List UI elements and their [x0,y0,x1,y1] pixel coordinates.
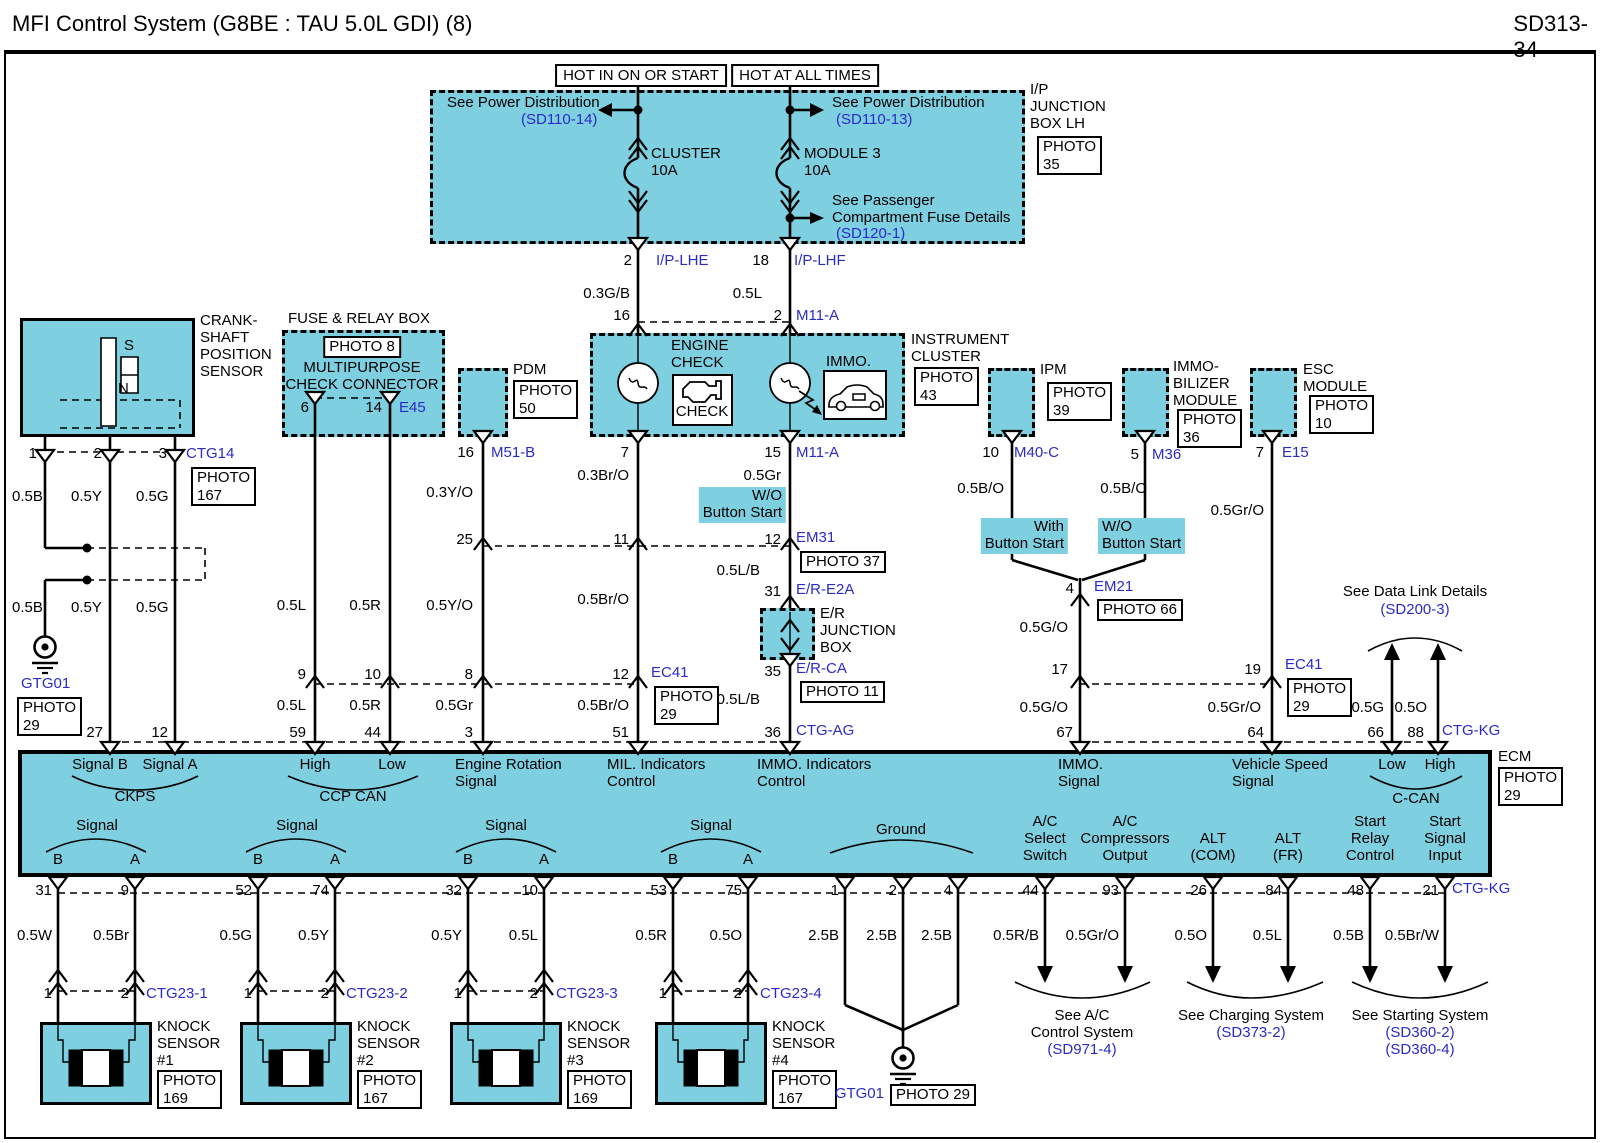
diagram-label: 0.5Y/O [426,598,473,615]
diagram-label: 4 [1066,581,1074,598]
diagram-label: 2.5B [866,928,897,945]
brace [1352,982,1488,998]
diagram-label: 3 [159,446,167,463]
knock-piezo-icon [269,1050,282,1086]
junction-dot [83,576,92,585]
diagram-label: 0.5B/O [1100,481,1147,498]
diagram-label: 0.5L [509,928,538,945]
check-engine-glyph-icon [683,381,721,402]
diagram-label: 2 [889,883,897,900]
diagram-label: 35 [764,664,781,681]
connector-name: M11-A [796,308,839,325]
connector-name: CTG23-1 [146,986,208,1003]
diagram-label: 88 [1407,725,1424,742]
diagram-label: Vehicle Speed Signal [1232,757,1328,791]
diagram-label: 0.5L [1253,928,1282,945]
connector-chevron-icon [306,742,324,754]
connector-chevron-icon [781,238,799,250]
diagram-label: 0.5G/O [1020,700,1068,717]
knock-piezo-icon [684,1050,697,1086]
diagram-label: KNOCK SENSOR #1 [157,1019,220,1070]
diagram-label: Signal A [142,757,197,774]
sd-reference-link[interactable]: (SD110-14) [521,112,597,129]
photo-ref[interactable]: PHOTO 50 [513,380,578,419]
connector-name: I/P-LHF [794,253,846,270]
diagram-label: 0.5Gr [435,698,473,715]
connector-chevron-icon [1429,742,1447,754]
sd-reference-link[interactable]: (SD200-3) [1380,602,1449,619]
ground-symbol-gtg01-bottom-dot [899,1054,906,1061]
diagram-label: 2 [530,986,538,1003]
diagram-label: 6 [301,400,309,417]
diagram-label: Signal [485,818,527,835]
diagram-label: 2.5B [808,928,839,945]
connector-chevron-icon [1071,742,1089,754]
diagram-label: 0.5Br/O [577,592,629,609]
photo-ref[interactable]: PHOTO 167 [191,467,256,506]
diagram-label: 0.5G [219,928,252,945]
diagram-label: See Starting System [1352,1008,1489,1025]
diagram-label: 15 [764,445,781,462]
diagram-label: 0.5Br [93,928,129,945]
photo-ref[interactable]: PHOTO 169 [157,1070,222,1109]
knock-piezo-icon [69,1050,82,1086]
diagram-label: ALT (FR) [1273,831,1303,865]
diagram-label: 0.3Br/O [577,468,629,485]
diagram-label: 9 [121,883,129,900]
diagram-label: MULTIPURPOSE CHECK CONNECTOR [285,360,438,394]
diagram-label: CHECK [676,404,729,421]
connector-chevron-icon [36,450,54,462]
photo-ref[interactable]: PHOTO 66 [1097,599,1183,621]
diagram-label: Engine Rotation Signal [455,757,562,791]
arrow-left-icon [598,103,612,117]
connector-name: GTG01 [21,676,70,693]
ground-symbol-gtg01-left-dot [41,643,48,650]
photo-ref[interactable]: PHOTO 29 [17,697,82,736]
junction-dot [634,106,643,115]
photo-ref[interactable]: PHOTO 167 [772,1070,837,1109]
diagram-label: MIL. Indicators Control [607,757,705,791]
knock-sensor-lead [258,1024,269,1062]
photo-ref[interactable]: PHOTO 35 [1037,136,1102,175]
diagram-label: 2 [734,986,742,1003]
diagram-label: 0.5W [17,928,52,945]
diagram-label: KNOCK SENSOR #4 [772,1019,835,1070]
diagram-label: 93 [1102,883,1119,900]
diagram-label: 0.5Br/O [577,698,629,715]
connector-chevron-icon [1263,431,1281,443]
diagram-label: Signal [276,818,318,835]
diagram-label: 10 [521,883,538,900]
connector-chevron-icon [474,431,492,443]
diagram-label: A/C Compressors Output [1080,814,1169,865]
diagram-label: 0.5Gr/O [1211,503,1264,520]
diagram-label: 18 [752,253,769,270]
diagram-label: 75 [725,883,742,900]
diagram-label: 0.5Gr/O [1208,700,1261,717]
diagram-label: ECM [1498,749,1531,766]
photo-ref[interactable]: PHOTO 29 [654,686,719,725]
diagram-label: 10 [982,445,999,462]
diagram-label: 0.5G/O [1020,620,1068,637]
diagram-label: With Button Start [981,518,1068,554]
connector-chevron-icon [629,742,647,754]
diagram-label: 0.5O [1174,928,1207,945]
knock-piezo-icon [520,1050,533,1086]
diagram-label: 2 [774,308,782,325]
connector-name: CTG23-4 [760,986,822,1003]
photo-ref[interactable]: PHOTO 43 [914,367,979,406]
diagram-label: 27 [86,725,103,742]
sd-reference-link[interactable]: (SD971-4) [1047,1042,1116,1059]
knock-piezo-icon [492,1050,520,1086]
diagram-label: CRANK- SHAFT POSITION SENSOR [200,313,272,381]
connector-name: E15 [1282,445,1309,462]
diagram-label: 0.3Y/O [426,485,473,502]
diagram-label: ALT (COM) [1191,831,1236,865]
knock-piezo-icon [282,1050,310,1086]
connector-name: E/R-CA [796,661,847,678]
diagram-label: 0.5Gr/O [1066,928,1119,945]
diagram-label: W/O Button Start [1098,518,1185,554]
photo-ref[interactable]: PHOTO 10 [1309,395,1374,434]
diagram-label: 0.5Gr [743,468,781,485]
connector-name: EC41 [651,665,689,682]
diagram-label: 0.5G [136,489,169,506]
knock-piezo-icon [479,1050,492,1086]
diagram-label: 0.5O [709,928,742,945]
connector-chevron-icon [101,742,119,754]
diagram-label: 84 [1265,883,1282,900]
diagram-label: 4 [944,883,952,900]
diagram-label: 5 [1131,447,1139,464]
diagram-label: A [743,852,753,869]
arrow-right-icon [810,212,824,224]
diagram-label: CKPS [115,789,156,806]
diagram-label: 36 [764,725,781,742]
photo-ref[interactable]: PHOTO 39 [1047,382,1112,421]
diagram-label: 0.5L [733,286,762,303]
diagram-label: 2 [321,986,329,1003]
diagram-label: 25 [456,532,473,549]
fuse-cluster-icon [625,158,639,188]
connector-name: CTG-KG [1442,723,1500,740]
diagram-label: 1 [454,986,462,1003]
diagram-label: 14 [365,400,382,417]
diagram-label: 0.5L [277,598,306,615]
diagram-label: 2 [94,446,102,463]
brace [1187,982,1323,998]
diagram-label: 31 [35,883,52,900]
diagram-label: 1 [44,986,52,1003]
diagram-label: Signal [690,818,732,835]
diagram-label: 0.5Y [431,928,462,945]
photo-ref[interactable]: PHOTO 37 [800,551,886,573]
connector-chevron-icon [474,742,492,754]
diagram-label: 0.5R [349,698,381,715]
photo-ref[interactable]: PHOTO 36 [1177,409,1242,448]
diagram-label: 2 [121,986,129,1003]
car-key-icon [853,394,865,400]
diagram-label: 1 [244,986,252,1003]
diagram-label: 26 [1190,883,1207,900]
diagram-label: 51 [612,725,629,742]
diagram-label: E/R JUNCTION BOX [820,606,896,657]
page-code: SD313-34 [1513,11,1588,63]
diagram-label: 16 [457,445,474,462]
diagram-label: 0.5Br/W [1385,928,1439,945]
sd-reference-link[interactable]: (SD373-2) [1216,1025,1285,1042]
diagram-label: See Passenger Compartment Fuse Details [832,193,1010,227]
diagram-label: Low [1378,757,1406,774]
diagram-label: 74 [312,883,329,900]
diagram-label: 0.5L/B [717,563,760,580]
knock-sensor-lead [58,1024,69,1062]
arrow-down-icon [1205,966,1221,983]
connector-name: CTG14 [186,446,234,463]
diagram-label: 0.5B/O [957,481,1004,498]
diagram-label: 0.5G [1351,700,1384,717]
connector-chevron-icon [1136,431,1154,443]
diagram-label: Start Relay Control [1346,814,1394,865]
diagram-label: 67 [1056,725,1073,742]
diagram-label: 11 [613,532,629,549]
diagram-label: 19 [1244,662,1261,679]
diagram-label: 0.5Y [71,489,102,506]
knock-piezo-icon [697,1050,725,1086]
knock-sensor-lead [673,1024,684,1062]
connector-name: CTG-AG [796,723,854,740]
diagram-label: PDM [513,362,546,379]
diagram-label: 12 [612,667,629,684]
diagram-label: 64 [1247,725,1264,742]
connector-name: M36 [1152,447,1181,464]
connector-name: CTG23-3 [556,986,618,1003]
diagram-label: Ground [876,822,926,839]
photo-ref[interactable]: PHOTO 11 [800,681,885,703]
brace [830,840,973,853]
knock-sensor-lead [123,1024,135,1062]
diagram-label: Start Signal Input [1424,814,1466,865]
diagram-label: I/P JUNCTION BOX LH [1030,82,1106,133]
diagram-label: 1 [29,446,37,463]
connector-name: GTG01 [835,1086,884,1103]
arrow-down-icon [1117,966,1133,983]
connector-name: E/R-E2A [796,582,854,599]
diagram-label: 1 [831,883,839,900]
diagram-label: Signal B [72,757,128,774]
diagram-label: High [300,757,331,774]
connector-chevron-icon [781,431,799,443]
diagram-label: 32 [445,883,462,900]
hot-label: HOT AT ALL TIMES [731,64,879,87]
diagram-label: 7 [1256,445,1264,462]
diagram-label: B [463,852,473,869]
car-wheel-icon [837,402,846,411]
sd-reference-link[interactable]: (SD110-13) [836,112,912,129]
connector-name: EC41 [1285,657,1323,674]
knock-sensor-lead [323,1024,335,1062]
diagram-label: W/O Button Start [699,487,786,523]
diagram-label: INSTRUMENT CLUSTER [911,332,1009,366]
diagram-label: 66 [1367,725,1384,742]
diagram-label: 0.5L [277,698,306,715]
diagram-label: 0.5Y [298,928,329,945]
connector-name: EM21 [1094,579,1133,596]
diagram-label: See A/C Control System [1031,1008,1134,1042]
diagram-label: High [1425,757,1456,774]
diagram-label: 0.5R [349,598,381,615]
knock-piezo-icon [110,1050,123,1086]
arrow-down-icon [1280,966,1296,983]
diagram-label: ESC MODULE [1303,362,1367,396]
diagram-label: A/C Select Switch [1023,814,1067,865]
ckps-reed-icon [101,338,116,426]
diagram-label: Low [378,757,406,774]
connector-name: CTG-KG [1452,881,1510,898]
sd-reference-link[interactable]: (SD360-2) (SD360-4) [1385,1025,1454,1059]
diagram-label: 0.5B [1333,928,1364,945]
diagram-label: 31 [764,584,781,601]
arrow-down-icon [1037,966,1053,983]
diagram-label: CCP CAN [319,789,386,806]
diagram-label: 53 [650,883,667,900]
diagram-label: 2 [624,253,632,270]
diagram-label: 48 [1347,883,1364,900]
arrow-down-icon [1437,966,1453,983]
knock-sensor-lead [533,1024,544,1062]
photo-ref[interactable]: PHOTO 169 [567,1070,632,1109]
diagram-label: KNOCK SENSOR #3 [567,1019,630,1070]
diagram-label: A [130,852,140,869]
photo-ref[interactable]: PHOTO 29 [890,1084,976,1106]
diagram-label: FUSE & RELAY BOX [288,311,430,328]
diagram-label: 2.5B [921,928,952,945]
diagram-label: 9 [298,667,306,684]
diagram-label: IPM [1040,362,1067,379]
connector-name: M40-C [1014,445,1059,462]
diagram-label: 21 [1422,883,1439,900]
connector-name: CTG23-2 [346,986,408,1003]
arrow-down-icon [1362,966,1378,983]
knock-piezo-icon [310,1050,323,1086]
diagram-label: 3 [465,725,473,742]
connector-name: I/P-LHE [656,253,709,270]
diagram-label: 7 [621,445,629,462]
diagram-label: 0.5L/B [717,692,760,709]
brace [1368,638,1462,651]
connector-chevron-icon [629,238,647,250]
diagram-label: B [53,852,63,869]
connector-name: M51-B [491,445,535,462]
diagram-label: 8 [465,667,473,684]
diagram-label: ENGINE CHECK [671,338,729,372]
connector-chevron-icon [1003,431,1021,443]
brace [1015,982,1150,998]
diagram-label: 0.3G/B [583,286,630,303]
wiring-diagram-page: MFI Control System (G8BE : TAU 5.0L GDI)… [0,0,1600,1143]
photo-ref[interactable]: PHOTO 29 [1287,678,1352,717]
knock-piezo-icon [725,1050,738,1086]
diagram-label: 44 [1022,883,1039,900]
connector-chevron-icon [166,742,184,754]
sd-reference-link[interactable]: (SD120-1) [836,226,905,243]
connector-name: EM31 [796,530,835,547]
diagram-label: 0.5R [635,928,667,945]
arrow-up-icon [1384,643,1400,660]
diagram-label: IMMO. Indicators Control [757,757,871,791]
diagram-label: 17 [1051,662,1068,679]
junction-dot [786,106,795,115]
diagram-label: 0.5B [12,489,43,506]
diagram-label: 52 [235,883,252,900]
photo-ref[interactable]: PHOTO 29 [1498,767,1563,806]
arrow-up-icon [1430,643,1446,660]
page-title: MFI Control System (G8BE : TAU 5.0L GDI)… [12,11,472,37]
diagram-label: A [539,852,549,869]
diagram-label: 1 [659,986,667,1003]
diagram-label: 59 [289,725,306,742]
diagram-label: See Power Distribution [832,95,985,112]
photo-ref[interactable]: PHOTO 8 [323,336,401,358]
diagram-label: 0.5R/B [993,928,1039,945]
diagram-label: IMMO. [826,354,871,371]
diagram-label: IMMO- BILIZER MODULE [1173,359,1237,410]
junction-dot [786,214,795,223]
diagram-label: 12 [764,532,781,549]
diagram-label: 0.5O [1394,700,1427,717]
diagram-label: 44 [364,725,381,742]
diagram-label: 0.5B [12,600,43,617]
diagram-label: A [330,852,340,869]
diagram-label: KNOCK SENSOR #2 [357,1019,420,1070]
junction-dot [83,544,92,553]
knock-sensor-lead [468,1024,479,1062]
connector-chevron-icon [166,450,184,462]
connector-name: E45 [399,400,426,417]
diagram-label: B [253,852,263,869]
lightning-arrowhead [812,405,822,415]
diagram-label: S [124,338,134,355]
diagram-label: 0.5Y [71,600,102,617]
car-wheel-icon [871,402,880,411]
connector-chevron-icon [101,450,119,462]
connector-name: M11-A [796,445,839,462]
connector-chevron-icon [629,431,647,443]
diagram-label: Signal [76,818,118,835]
hot-label: HOT IN ON OR START [555,64,727,87]
diagram-label: 10 [364,667,381,684]
connector-chevron-icon [381,742,399,754]
diagram-label: CLUSTER 10A [651,146,721,180]
brace [1370,776,1462,789]
knock-piezo-icon [82,1050,110,1086]
diagram-label: 16 [613,308,630,325]
diagram-label: C-CAN [1392,791,1440,808]
diagram-label: B [668,852,678,869]
diagram-label: MODULE 3 10A [804,146,881,180]
photo-ref[interactable]: PHOTO 167 [357,1070,422,1109]
connector-chevron-icon [781,742,799,754]
diagram-label: 0.5G [136,600,169,617]
diagram-label: N [118,381,129,398]
knock-sensor-lead [738,1024,748,1062]
connector-chevron-icon [1383,742,1401,754]
connector-chevron-icon [1263,742,1281,754]
diagram-label: See Charging System [1178,1008,1324,1025]
fuse-module3-icon [777,158,791,188]
